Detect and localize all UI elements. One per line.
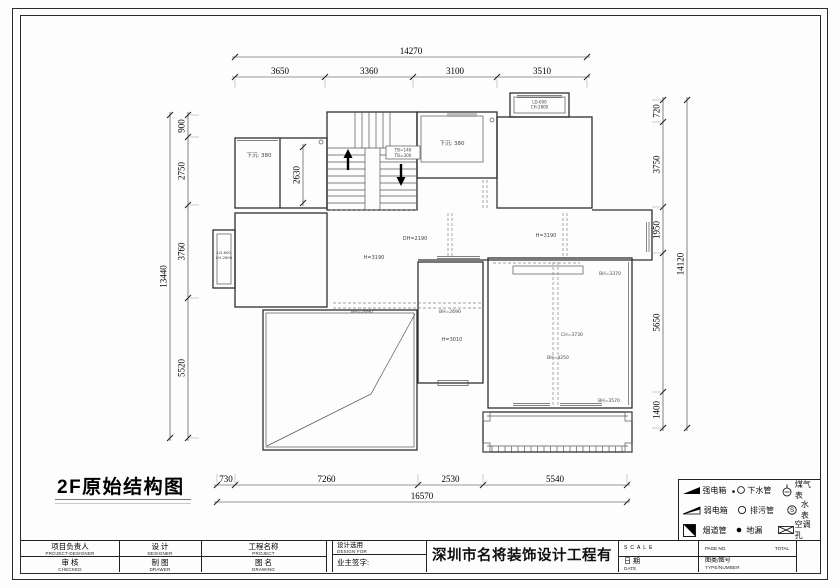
field-en: DESIGNER bbox=[119, 551, 201, 556]
field-en: TYPE/NUMBER bbox=[705, 565, 803, 570]
field-en: CHECKED bbox=[21, 567, 119, 572]
label-beam-left: BH=2690 bbox=[351, 309, 373, 315]
total-label: TOTAL bbox=[775, 546, 789, 551]
legend-row: 强电箱 下水管 煤气表 bbox=[679, 480, 820, 500]
dimension-text: 5650 bbox=[652, 313, 662, 332]
field-owner-signature: 业主签字: bbox=[332, 554, 431, 572]
field-cn: 图类/图号 bbox=[705, 558, 803, 565]
stair-up-arrow-shaft bbox=[347, 156, 349, 170]
legend-label: 弱电箱 bbox=[704, 505, 735, 516]
company-name: 深圳市名将装饰设计工程有限公司 bbox=[426, 541, 618, 572]
field-drawing-name: 图 名 DRAWING bbox=[201, 557, 326, 572]
legend-label: 下水管 bbox=[747, 485, 778, 496]
dimension-text: 2630 bbox=[292, 166, 302, 185]
strong-electric-box-icon bbox=[683, 484, 702, 496]
svg-text:S: S bbox=[790, 508, 794, 514]
drawing-sheet: { "sheet": { "title": "2F原始结构图" }, "dims… bbox=[0, 0, 840, 588]
field-cn: 制 图 bbox=[119, 558, 201, 567]
gas-meter-icon bbox=[778, 484, 795, 497]
field-design-for: 设计选用 DESIGN FOR bbox=[332, 541, 431, 554]
label-right-bh-top: BH=3370 bbox=[599, 271, 621, 277]
label-beam-mid: BH=2690 bbox=[439, 309, 461, 315]
legend-box: 强电箱 下水管 煤气表 弱电箱 排污管 S 水表 烟道管 地漏 空调孔 bbox=[678, 479, 821, 541]
label-right-bh-bottom: BH=3570 bbox=[598, 398, 620, 404]
stair-down-arrow-head bbox=[397, 177, 406, 186]
dimension-text: 7260 bbox=[318, 474, 337, 484]
floor-plan-details bbox=[217, 96, 649, 453]
field-cn: 项目负责人 bbox=[21, 542, 119, 551]
field-cn: 业主签字: bbox=[337, 554, 431, 572]
field-en: DATE bbox=[624, 566, 704, 571]
field-project-name: 工程名称 PROJECT bbox=[201, 541, 326, 556]
field-scale: SCALE bbox=[618, 541, 704, 556]
floor-plan-walls bbox=[213, 93, 652, 452]
water-meter-icon: S bbox=[783, 504, 801, 516]
drawing-title: 2F原始结构图 bbox=[57, 472, 185, 499]
field-en: PROJECT-DESIGNER bbox=[21, 551, 119, 556]
title-underline bbox=[55, 499, 191, 504]
dimension-text: 3750 bbox=[652, 155, 662, 174]
page-no-label: PAGE NO. bbox=[705, 546, 726, 551]
legend-label: 烟道管 bbox=[703, 525, 732, 536]
stair-up-arrow-head bbox=[344, 149, 353, 158]
legend-label: 煤气表 bbox=[795, 479, 816, 501]
stair-down-arrow-shaft bbox=[400, 164, 402, 178]
beam-dashed-lines bbox=[330, 180, 580, 407]
dimension-text: 3650 bbox=[271, 66, 290, 76]
company-text: 深圳市名将装饰设计工程有限公司 bbox=[426, 541, 618, 572]
legend-label: 排污管 bbox=[750, 505, 783, 516]
dimension-text: 1950 bbox=[652, 221, 662, 240]
field-cn: 图 名 bbox=[201, 558, 326, 567]
ac-hole-icon bbox=[778, 525, 795, 535]
field-designer: 设 计 DESIGNER bbox=[119, 541, 201, 556]
sewage-pipe-icon bbox=[735, 505, 750, 515]
field-checked: 审 核 CHECKED bbox=[21, 557, 119, 572]
weak-electric-box-icon bbox=[683, 504, 704, 516]
dimension-text: 3760 bbox=[177, 242, 187, 261]
drain-pipe-icon bbox=[731, 485, 747, 495]
field-cn: SCALE bbox=[624, 541, 704, 555]
field-cn: 设计选用 bbox=[337, 542, 431, 549]
dimension-text: 2750 bbox=[177, 162, 187, 181]
dimension-text: 730 bbox=[219, 474, 233, 484]
balcony-hatch bbox=[492, 447, 622, 452]
legend-row: 烟道管 地漏 空调孔 bbox=[679, 520, 820, 540]
floor-drain-icon bbox=[732, 525, 746, 535]
dimension-text: 2530 bbox=[442, 474, 461, 484]
dimension-text: 14270 bbox=[400, 46, 423, 56]
legend-label: 地漏 bbox=[746, 525, 777, 536]
field-cn: 日 期 bbox=[624, 558, 704, 566]
label-living-h: H=3190 bbox=[364, 255, 385, 261]
dimension-text: 900 bbox=[177, 119, 187, 133]
label-sunken-mid: 下沉: 380 bbox=[439, 139, 465, 147]
dimension-text: 1400 bbox=[652, 401, 662, 420]
legend-label: 强电箱 bbox=[702, 485, 731, 496]
dimension-text: 3100 bbox=[446, 66, 465, 76]
field-cn: 审 核 bbox=[21, 558, 119, 567]
dimension-text: 14120 bbox=[676, 252, 686, 275]
legend-row: 弱电箱 排污管 S 水表 bbox=[679, 500, 820, 520]
label-mid-h: H=3010 bbox=[442, 337, 463, 343]
dimension-text: 720 bbox=[652, 104, 662, 118]
dimension-text: 16570 bbox=[411, 491, 434, 501]
field-en: DRAWER bbox=[119, 567, 201, 572]
field-type-number: 图类/图号 TYPE/NUMBER bbox=[698, 557, 803, 572]
flue-pipe-icon bbox=[683, 524, 703, 537]
field-en: DRAWING bbox=[201, 567, 326, 572]
field-cn: 工程名称 bbox=[201, 542, 326, 551]
dimension-text: 13440 bbox=[159, 265, 169, 288]
field-en: PROJECT bbox=[201, 551, 326, 556]
label-right-ch: CH=3730 bbox=[561, 332, 583, 338]
label-stair-tb1: TB=140 bbox=[394, 148, 412, 153]
legend-label: 水表 bbox=[801, 499, 816, 521]
label-stair-tb2: TB=300 bbox=[394, 153, 412, 158]
title-block: 项目负责人 PROJECT-DESIGNER 审 核 CHECKED 设 计 D… bbox=[21, 540, 818, 572]
dimension-text: 5540 bbox=[546, 474, 565, 484]
field-cn: 设 计 bbox=[119, 542, 201, 551]
dimension-text: 3510 bbox=[533, 66, 552, 76]
legend-label: 空调孔 bbox=[795, 519, 816, 541]
dimension-text: 5520 bbox=[177, 359, 187, 378]
label-right-bh-mid: BH=4250 bbox=[547, 355, 569, 361]
field-drawer: 制 图 DRAWER bbox=[119, 557, 201, 572]
field-page: PAGE NO. TOTAL bbox=[698, 541, 796, 556]
field-project-designer: 项目负责人 PROJECT-DESIGNER bbox=[21, 541, 119, 556]
label-bay-left-2: CH-2600 bbox=[216, 255, 233, 260]
label-bay-top-2: CH-2800 bbox=[531, 105, 549, 110]
dimension-text: 3360 bbox=[360, 66, 379, 76]
label-hall-h: H=3190 bbox=[536, 233, 557, 239]
label-sunken-left: 下沉: 380 bbox=[246, 151, 272, 159]
field-date: 日 期 DATE bbox=[618, 557, 704, 572]
label-hall-dh: DH=2190 bbox=[403, 236, 428, 242]
